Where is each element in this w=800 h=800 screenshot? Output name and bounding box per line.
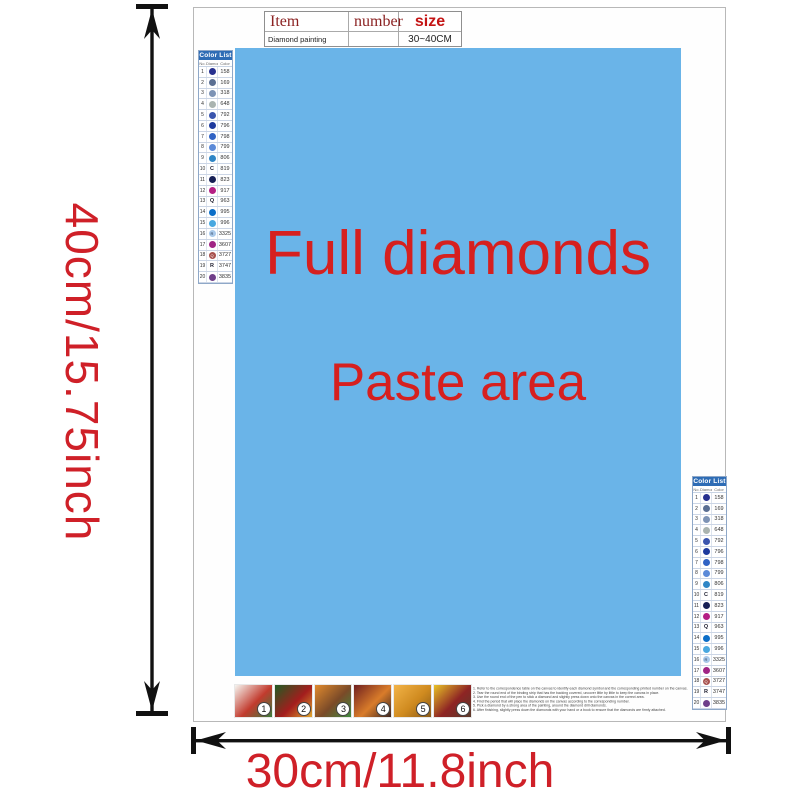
color-row-number: 19 [199, 263, 206, 269]
color-list-title: Color List [693, 477, 726, 486]
color-row: 5792 [199, 110, 232, 121]
color-row-number: 16 [693, 657, 700, 663]
diamond-color-dot: Q [703, 678, 710, 685]
step-number-badge: 6 [456, 702, 470, 716]
dmc-color-code: 798 [218, 134, 232, 140]
color-row: 19R3747 [199, 261, 232, 272]
diamond-color-dot [209, 133, 216, 140]
diamond-symbol-cell [700, 644, 712, 654]
dmc-color-code: 169 [218, 80, 232, 86]
color-row-number: 17 [199, 242, 206, 248]
dmc-color-code: 806 [712, 581, 726, 587]
diamond-color-dot [703, 613, 710, 620]
arrow-left-cap [191, 727, 196, 754]
product-infographic: 40cm/15.75inch Item number size Diamond … [0, 0, 800, 800]
color-row-number: 10 [199, 166, 206, 172]
step-thumbnail: 2 [274, 684, 313, 718]
color-row: 14995 [693, 633, 726, 644]
diamond-symbol-cell [206, 99, 218, 109]
color-row: 2169 [693, 504, 726, 515]
color-row-number: 1 [693, 495, 700, 501]
color-row-number: 15 [693, 646, 700, 652]
height-dimension-arrow [134, 2, 170, 718]
color-row: 3318 [199, 89, 232, 100]
dmc-color-code: 996 [218, 220, 232, 226]
col-color: Color [218, 61, 232, 66]
table-header-size: size [399, 12, 461, 32]
color-row-number: 3 [693, 516, 700, 522]
color-row: 10C819 [199, 164, 232, 175]
diamond-color-dot [703, 559, 710, 566]
diamond-color-dot [703, 646, 710, 653]
height-dimension-label: 40cm/15.75inch [55, 203, 109, 542]
diamond-color-dot [703, 527, 710, 534]
color-list-body: 11582169331846485792679677988799980610C8… [693, 493, 726, 709]
color-row-number: 14 [199, 209, 206, 215]
step-thumbnail: 6 [433, 684, 472, 718]
diamond-symbol-cell [206, 240, 218, 250]
color-row-number: 12 [693, 614, 700, 620]
paste-area-title-line1: Full diamonds [235, 223, 681, 285]
step-thumbnail: 3 [314, 684, 353, 718]
diamond-color-dot [209, 176, 216, 183]
table-cell-number [349, 32, 399, 46]
color-list-left: Color List No. Diamond Color 11582169331… [198, 50, 233, 284]
color-row: 11823 [199, 175, 232, 186]
color-row: 4648 [693, 525, 726, 536]
paste-area-title-line2: Paste area [235, 356, 681, 409]
dmc-color-code: 796 [712, 549, 726, 555]
dmc-color-code: 792 [712, 538, 726, 544]
diamond-color-dot [703, 602, 710, 609]
color-row: 203835 [199, 272, 232, 283]
dmc-color-code: 3607 [218, 242, 232, 248]
diamond-symbol-cell: R [206, 261, 218, 271]
diamond-color-dot: R [209, 230, 216, 237]
color-row: 18Q3727 [199, 251, 232, 262]
color-row-number: 9 [693, 581, 700, 587]
dmc-color-code: 3835 [712, 700, 726, 706]
color-row: 15996 [199, 218, 232, 229]
dmc-color-code: 3747 [218, 263, 232, 269]
col-no: No. [693, 487, 700, 492]
color-row-number: 13 [693, 624, 700, 630]
color-row: 14995 [199, 207, 232, 218]
diamond-color-dot [209, 155, 216, 162]
table-header-item: Item [265, 12, 349, 32]
diamond-color-dot [209, 122, 216, 129]
dmc-color-code: 318 [712, 516, 726, 522]
dmc-color-code: 819 [712, 592, 726, 598]
color-row: 173607 [693, 666, 726, 677]
color-row-number: 17 [693, 668, 700, 674]
diamond-symbol-cell [700, 547, 712, 557]
color-row-number: 15 [199, 220, 206, 226]
table-cell-size: 30~40CM [399, 32, 461, 46]
dmc-color-code: 3727 [218, 252, 232, 258]
arrow-bottom-cap [136, 711, 168, 716]
diamond-color-dot [703, 538, 710, 545]
diamond-symbol-cell [700, 579, 712, 589]
diamond-color-dot [209, 241, 216, 248]
color-row: 9806 [199, 153, 232, 164]
color-row-number: 8 [199, 144, 206, 150]
color-row-number: 4 [693, 527, 700, 533]
color-row: 18Q3727 [693, 677, 726, 688]
diamond-color-dot [209, 220, 216, 227]
col-color: Color [712, 487, 726, 492]
dmc-color-code: 3607 [712, 668, 726, 674]
diamond-symbol-cell: R [206, 229, 218, 239]
color-row-number: 12 [199, 188, 206, 194]
dmc-color-code: 819 [218, 166, 232, 172]
dmc-color-code: 3325 [218, 231, 232, 237]
color-row-number: 6 [693, 549, 700, 555]
diamond-color-dot [209, 68, 216, 75]
color-row-number: 9 [199, 155, 206, 161]
step-number-badge: 4 [376, 702, 390, 716]
diamond-color-dot [703, 667, 710, 674]
color-list-title: Color List [199, 51, 232, 60]
arrow-right-cap [726, 727, 731, 754]
diamond-symbol-cell [206, 175, 218, 185]
color-row-number: 18 [199, 252, 206, 258]
color-row-number: 10 [693, 592, 700, 598]
step-number-badge: 3 [336, 702, 350, 716]
diamond-symbol-cell [700, 515, 712, 525]
canvas-sheet: Item number size Diamond painting 30~40C… [193, 7, 726, 722]
dmc-color-code: 823 [712, 603, 726, 609]
diamond-symbol-cell: Q [700, 677, 712, 687]
diamond-color-dot [703, 635, 710, 642]
color-row-number: 1 [199, 69, 206, 75]
color-row-number: 2 [199, 80, 206, 86]
table-header-number: number [349, 12, 399, 32]
step-thumbnail: 4 [353, 684, 392, 718]
arrow-top-cap [136, 4, 168, 9]
diamond-symbol-cell: Q [206, 251, 218, 261]
dmc-color-code: 3325 [712, 657, 726, 663]
diamond-color-dot [209, 144, 216, 151]
color-row-number: 11 [199, 177, 206, 183]
color-row-number: 16 [199, 231, 206, 237]
step-thumbnail: 5 [393, 684, 432, 718]
diamond-color-dot: R [703, 656, 710, 663]
color-row: 7798 [693, 558, 726, 569]
color-row: 12917 [199, 186, 232, 197]
diamond-symbol-cell [206, 186, 218, 196]
color-row: 9806 [693, 579, 726, 590]
diamond-symbol-cell [206, 89, 218, 99]
dmc-color-code: 3727 [712, 678, 726, 684]
dmc-color-code: 169 [712, 506, 726, 512]
diamond-color-dot [209, 209, 216, 216]
diamond-color-dot [209, 79, 216, 86]
diamond-symbol-cell [206, 153, 218, 163]
color-row-number: 3 [199, 90, 206, 96]
diamond-color-dot [703, 570, 710, 577]
diamond-symbol-cell [206, 272, 218, 282]
diamond-color-dot [703, 505, 710, 512]
col-no: No. [199, 61, 206, 66]
diamond-symbol-cell [700, 558, 712, 568]
instructions-block: 1. Refer to the correspondence table on … [473, 687, 703, 718]
color-row-number: 7 [199, 134, 206, 140]
color-row-number: 7 [693, 560, 700, 566]
diamond-symbol-cell: Q [206, 197, 218, 207]
dmc-color-code: 648 [218, 101, 232, 107]
diamond-symbol-cell [700, 612, 712, 622]
paste-area: Full diamonds Paste area [235, 48, 681, 676]
diamond-symbol-cell [206, 218, 218, 228]
diamond-symbol-cell [700, 569, 712, 579]
color-row-number: 5 [693, 538, 700, 544]
color-row: 6796 [199, 121, 232, 132]
diamond-symbol-cell [700, 633, 712, 643]
dmc-color-code: 648 [712, 527, 726, 533]
diamond-color-dot [209, 187, 216, 194]
diamond-color-dot [703, 494, 710, 501]
diamond-symbol-cell [700, 666, 712, 676]
dmc-color-code: 799 [712, 570, 726, 576]
color-row-number: 6 [199, 123, 206, 129]
color-row: 1158 [199, 67, 232, 78]
color-row-number: 14 [693, 635, 700, 641]
dmc-color-code: 799 [218, 144, 232, 150]
dmc-color-code: 823 [218, 177, 232, 183]
instruction-line: 6. After finishing, slightly press down … [473, 708, 703, 712]
dmc-color-code: 792 [218, 112, 232, 118]
color-row: 173607 [199, 240, 232, 251]
dmc-color-code: 917 [712, 614, 726, 620]
diamond-symbol-cell [206, 121, 218, 131]
color-list-columns: No. Diamond Color [693, 486, 726, 493]
color-row: 12917 [693, 612, 726, 623]
diamond-color-dot [703, 581, 710, 588]
dmc-color-code: 158 [218, 69, 232, 75]
color-row-number: 11 [693, 603, 700, 609]
color-row: 16R3325 [693, 655, 726, 666]
width-dimension-label: 30cm/11.8inch [246, 744, 555, 799]
color-row-number: 5 [199, 112, 206, 118]
dmc-color-code: 796 [218, 123, 232, 129]
diamond-symbol-cell [700, 493, 712, 503]
color-row: 8799 [199, 143, 232, 154]
dmc-color-code: 963 [218, 198, 232, 204]
color-list-right: Color List No. Diamond Color 11582169331… [692, 476, 727, 710]
color-row-number: 13 [199, 198, 206, 204]
diamond-symbol-cell: C [206, 164, 218, 174]
step-number-badge: 2 [297, 702, 311, 716]
color-row: 1158 [693, 493, 726, 504]
color-row: 8799 [693, 569, 726, 580]
diamond-symbol-cell [206, 132, 218, 142]
color-list-columns: No. Diamond Color [199, 60, 232, 67]
diamond-color-dot [209, 101, 216, 108]
dmc-color-code: 806 [218, 155, 232, 161]
arrow-shaft [196, 739, 726, 742]
color-row-number: 18 [693, 678, 700, 684]
color-row-number: 20 [199, 274, 206, 280]
color-row: 16R3325 [199, 229, 232, 240]
diamond-symbol-cell [206, 78, 218, 88]
step-number-badge: 5 [416, 702, 430, 716]
color-row: 13Q963 [693, 623, 726, 634]
color-row: 11823 [693, 601, 726, 612]
color-row: 15996 [693, 644, 726, 655]
color-row: 5792 [693, 536, 726, 547]
diamond-color-dot: Q [209, 252, 216, 259]
color-row: 3318 [693, 515, 726, 526]
diamond-symbol-cell [206, 143, 218, 153]
col-diamond: Diamond [206, 61, 218, 66]
step-thumbnails-strip: 123456 [234, 684, 472, 718]
diamond-symbol-cell [700, 525, 712, 535]
color-row: 10C819 [693, 590, 726, 601]
dmc-color-code: 158 [712, 495, 726, 501]
diamond-symbol-cell [700, 601, 712, 611]
table-cell-item: Diamond painting [265, 32, 349, 46]
diamond-symbol-cell: Q [700, 623, 712, 633]
item-info-table: Item number size Diamond painting 30~40C… [264, 11, 462, 47]
dmc-color-code: 917 [218, 188, 232, 194]
dmc-color-code: 963 [712, 624, 726, 630]
dmc-color-code: 318 [218, 90, 232, 96]
step-number-badge: 1 [257, 702, 271, 716]
diamond-symbol-cell [700, 504, 712, 514]
diamond-symbol-cell [206, 110, 218, 120]
diamond-color-dot [209, 90, 216, 97]
color-row-number: 8 [693, 570, 700, 576]
diamond-symbol-cell: R [700, 655, 712, 665]
color-row-number: 2 [693, 506, 700, 512]
color-row: 7798 [199, 132, 232, 143]
dmc-color-code: 798 [712, 560, 726, 566]
dmc-color-code: 995 [712, 635, 726, 641]
dmc-color-code: 996 [712, 646, 726, 652]
dmc-color-code: 995 [218, 209, 232, 215]
color-row: 6796 [693, 547, 726, 558]
diamond-symbol-cell [700, 536, 712, 546]
color-row: 4648 [199, 99, 232, 110]
diamond-symbol-cell [206, 207, 218, 217]
diamond-symbol-cell [206, 67, 218, 77]
color-row-number: 4 [199, 101, 206, 107]
color-row: 13Q963 [199, 197, 232, 208]
col-diamond: Diamond [700, 487, 712, 492]
diamond-color-dot [703, 700, 710, 707]
diamond-color-dot [209, 112, 216, 119]
diamond-color-dot [703, 516, 710, 523]
arrow-shaft [150, 9, 153, 711]
step-thumbnail: 1 [234, 684, 273, 718]
color-row: 2169 [199, 78, 232, 89]
dmc-color-code: 3747 [712, 689, 726, 695]
diamond-color-dot [209, 274, 216, 281]
dmc-color-code: 3835 [218, 274, 232, 280]
color-list-body: 11582169331846485792679677988799980610C8… [199, 67, 232, 283]
diamond-symbol-cell: C [700, 590, 712, 600]
diamond-color-dot [703, 548, 710, 555]
